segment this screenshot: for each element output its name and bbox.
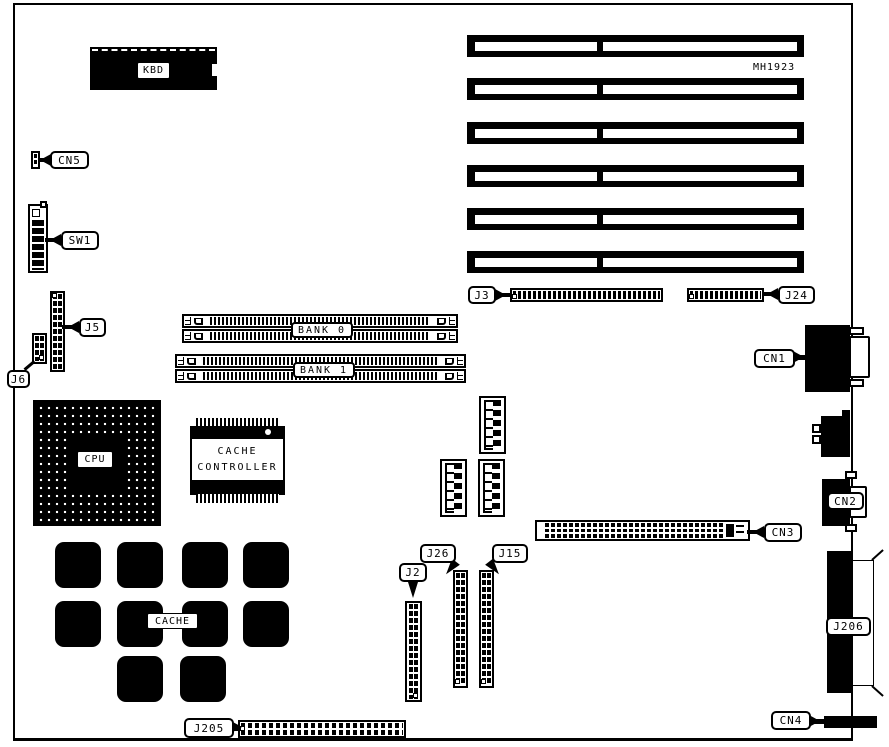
cn3-connector [535,520,750,541]
j3-pin1-marker [512,294,517,299]
cache-controller-pin1-dot [265,429,271,435]
j205-pin-row [241,723,403,728]
cache-chip [55,601,101,647]
j2-pin1-marker [413,693,418,698]
cache-controller-pins-bottom [196,494,279,503]
jumper-block [479,396,506,454]
cn3-end-block [726,524,734,537]
j26-pin-column [461,573,465,685]
simm-latch-right [437,333,446,340]
isa-slot-5 [467,208,804,230]
part-number: MH1923 [753,62,795,73]
simm-latch-left [187,373,196,380]
j5-callout: J5 [79,318,106,337]
cache-chip [243,542,289,588]
isa-slot-3 [467,122,804,144]
isa-slot-6 [467,251,804,273]
cn5-callout: CN5 [50,151,89,169]
j24-header [687,288,764,302]
isa-slot-4 [467,165,804,187]
simm-latch-left [187,358,196,365]
j206-bracket-line-top [871,549,883,561]
bank0-label-text: BANK 0 [298,325,346,336]
j206-callout-text: J206 [833,620,864,633]
simm-end-right [457,357,463,365]
cn5-pins [34,154,37,166]
j3-callout-pointer [495,289,506,301]
j2-callout: J2 [399,563,427,582]
cache-chip [117,656,163,702]
j205-callout: J205 [184,718,234,738]
isa-slot-segment [475,215,597,224]
isa-slot-segment [603,258,797,267]
kbd-chip-dashed-edge [92,49,215,51]
sw1-switch-cells [32,220,44,270]
cn4-callout-text: CN4 [780,714,803,727]
j15-header [479,570,494,688]
simm-end-left [178,357,184,365]
j24-callout-text: J24 [785,289,808,302]
simm-latch-right [445,358,454,365]
j24-pin1-marker [689,294,694,299]
simm-end-left [178,372,184,380]
cn3-end-contacts [736,525,744,536]
j24-pin-row [690,291,761,295]
simm-end-right [449,332,455,340]
mini-connector [821,416,850,457]
j3-callout-text: J3 [474,289,489,302]
cn4-connector [824,716,877,728]
j5-callout-text: J5 [85,321,100,334]
j26-callout-text: J26 [427,547,450,560]
cache-chip [182,542,228,588]
j24-pin-row [690,295,761,299]
cache-controller-label-line1: CACHE [217,444,257,460]
sw1-tab [40,201,47,208]
cn3-pin-row [545,529,724,533]
cn2-callout: CN2 [827,492,864,510]
cache-chip [180,656,226,702]
j15-pin-column [482,573,486,685]
isa-slot-segment [603,215,797,224]
cache-controller-label: CACHE CONTROLLER [190,437,285,482]
j6-callout: J6 [7,370,30,388]
cn1-tab-bottom [849,379,864,387]
isa-slot-segment [603,129,797,138]
j26-pin1-marker [455,679,460,684]
j5-pin1-marker [52,293,57,298]
kbd-chip-notch [212,64,217,76]
j26-pin-column [456,573,460,685]
cache-label: CACHE [147,613,198,629]
cpu-label: CPU [77,451,113,468]
jumper-filled-column [493,400,501,450]
cn1-callout-text: CN1 [763,352,786,365]
j3-header [510,288,663,302]
cache-chip [117,542,163,588]
j206-callout: J206 [826,617,871,636]
isa-slot-segment [475,258,597,267]
j5-callout-pointer [68,321,79,333]
isa-slot-segment [475,129,597,138]
j24-callout: J24 [778,286,815,304]
j24-callout-pointer [767,288,778,300]
j15-pin-column [487,573,491,685]
simm-end-right [449,317,455,325]
isa-slot-1 [467,35,804,57]
cn2-tab-top [845,471,857,479]
j26-callout: J26 [420,544,456,563]
cn4-callout: CN4 [771,711,811,730]
cache-controller-label-line2: CONTROLLER [197,460,277,476]
isa-slot-2 [467,78,804,100]
j205-header [238,720,406,738]
isa-slot-segment [475,42,597,51]
cache-label-text: CACHE [155,616,190,627]
j5-pin-column [53,294,57,369]
isa-slot-segment [603,42,797,51]
j206-bracket-line-bottom [871,685,883,697]
cn2-callout-text: CN2 [834,495,857,508]
j205-pin-row [241,730,403,735]
simm-latch-left [194,318,203,325]
cn1-tab-top [849,327,864,335]
j5-pin-column [58,294,62,369]
j2-pin-column [409,604,413,699]
j2-pin-column [414,604,418,699]
bank0-label: BANK 0 [291,322,353,338]
j15-callout: J15 [492,544,528,563]
cn3-pin-row [545,534,724,538]
cn3-callout-pointer [753,526,764,538]
sw1-open-cell [32,209,40,217]
kbd-label-text: KBD [143,65,164,76]
cache-chip [55,542,101,588]
sw1-callout-pointer [50,234,61,246]
kbd-label: KBD [137,62,170,79]
j3-pin-row [513,295,660,299]
cn1-port-face [849,336,870,378]
j3-pin-row [513,291,660,295]
j205-callout-text: J205 [194,722,225,735]
simm-end-left [185,317,191,325]
cpu-label-text: CPU [84,454,105,465]
isa-slot-segment [603,85,797,94]
jumper-filled-column [454,463,462,513]
j5-header [50,291,65,372]
simm-end-right [457,372,463,380]
simm-latch-left [194,333,203,340]
simm-latch-right [437,318,446,325]
bank1-label: BANK 1 [293,362,355,378]
bank1-label-text: BANK 1 [300,365,348,376]
cn5-callout-text: CN5 [58,154,81,167]
jumper-filled-column [492,463,500,513]
isa-slot-segment [475,172,597,181]
cn3-callout: CN3 [764,523,802,542]
j2-header [405,601,422,702]
simm-latch-right [445,373,454,380]
j2-callout-text: J2 [405,566,420,579]
simm-end-left [185,332,191,340]
cn1-connector [805,325,850,392]
j2-callout-pointer [408,582,418,598]
jumper-block [440,459,467,517]
cn3-callout-text: CN3 [772,526,795,539]
j15-callout-text: J15 [499,547,522,560]
sw1-callout-text: SW1 [69,234,92,247]
jumper-block [478,459,505,517]
j26-header [453,570,468,688]
sw1-callout: SW1 [61,231,99,250]
motherboard-diagram: KBD CN5 SW1 J5 J6 [0,0,889,747]
cache-chip [243,601,289,647]
cn3-pin-row [545,523,724,527]
j6-callout-text: J6 [11,373,26,386]
mini-connector-tab [812,424,821,433]
j3-callout: J3 [468,286,496,304]
j15-pin1-marker [481,679,486,684]
isa-slot-segment [603,172,797,181]
j6-pin1-marker [39,355,44,360]
cn2-tab-bottom [845,524,857,532]
mini-connector-tab [812,435,821,444]
cn1-callout: CN1 [754,349,795,368]
isa-slot-segment [475,85,597,94]
